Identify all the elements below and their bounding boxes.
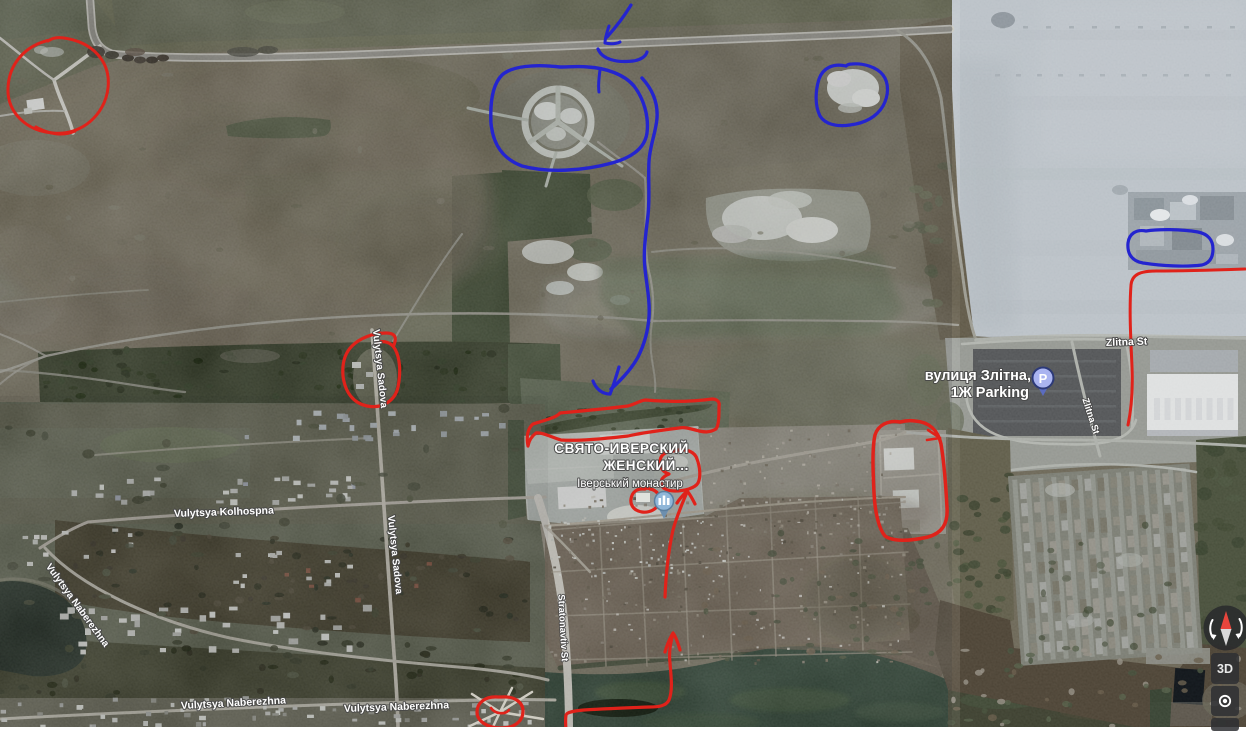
svg-text:P: P bbox=[1039, 371, 1048, 386]
svg-text:ЖЕНСКИЙ...: ЖЕНСКИЙ... bbox=[602, 458, 689, 473]
svg-text:вулиця Злітна,: вулиця Злітна, bbox=[925, 368, 1031, 384]
svg-text:1Ж Parking: 1Ж Parking bbox=[951, 385, 1029, 401]
svg-text:СВЯТО-ИВЕРСКИЙ: СВЯТО-ИВЕРСКИЙ bbox=[554, 441, 689, 456]
svg-text:Іверський монастир: Іверський монастир bbox=[577, 478, 683, 490]
svg-text:3D: 3D bbox=[1217, 662, 1233, 676]
svg-text:Zlitna St: Zlitna St bbox=[1106, 336, 1148, 349]
